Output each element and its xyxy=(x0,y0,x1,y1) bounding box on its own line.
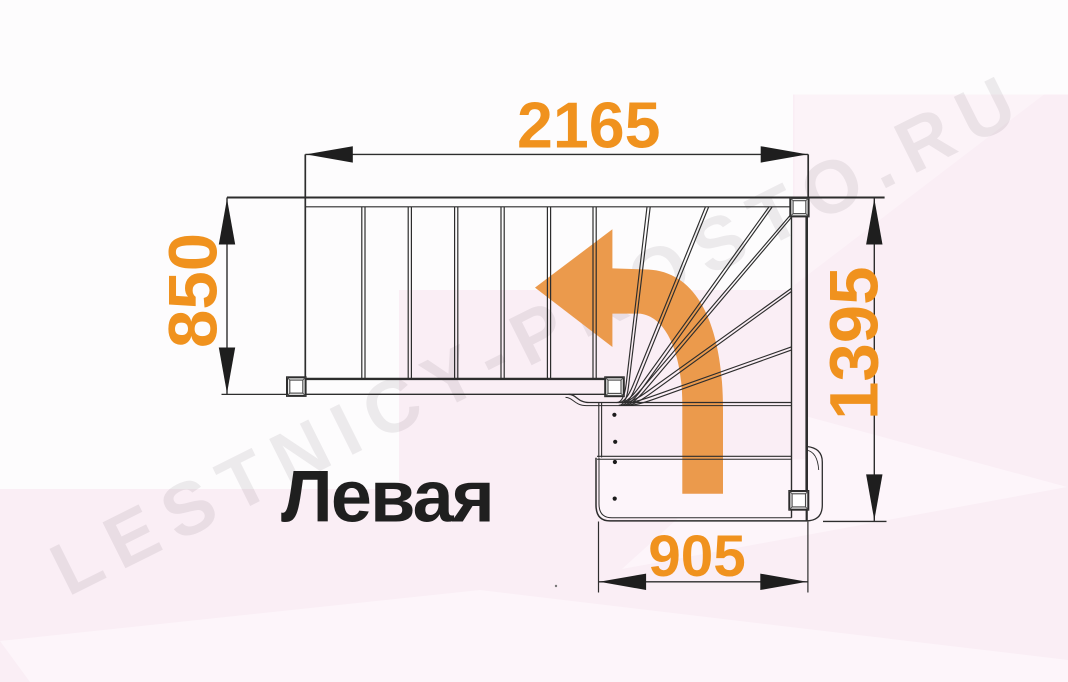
svg-text:1395: 1395 xyxy=(816,267,893,421)
svg-text:905: 905 xyxy=(648,524,746,589)
svg-text:Левая: Левая xyxy=(281,455,493,538)
svg-text:850: 850 xyxy=(155,233,232,348)
svg-text:2165: 2165 xyxy=(517,90,661,162)
